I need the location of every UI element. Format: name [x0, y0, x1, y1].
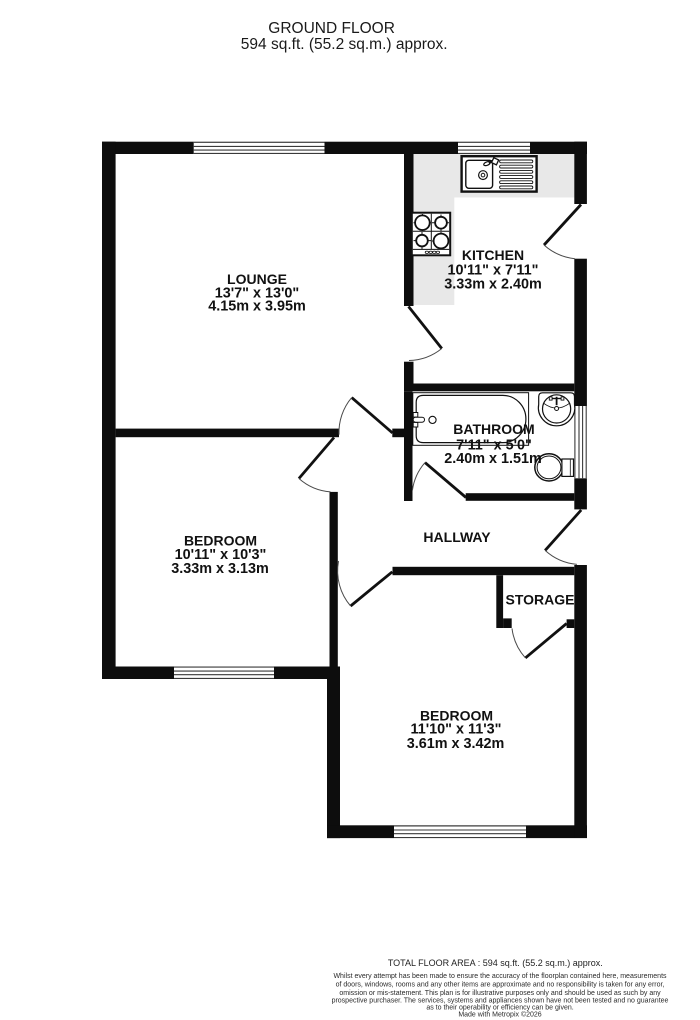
svg-text:TOTAL FLOOR AREA : 594 sq.ft.: TOTAL FLOOR AREA : 594 sq.ft. (55.2 sq.m… [388, 958, 603, 968]
svg-text:4.15m x 3.95m: 4.15m x 3.95m [208, 299, 306, 315]
svg-text:STORAGE: STORAGE [506, 592, 575, 608]
svg-text:HALLWAY: HALLWAY [423, 529, 491, 545]
svg-text:Made with Metropix ©2026: Made with Metropix ©2026 [458, 1011, 541, 1019]
svg-text:3.33m x 3.13m: 3.33m x 3.13m [171, 561, 269, 577]
svg-text:3.33m x 2.40m: 3.33m x 2.40m [444, 276, 542, 292]
svg-text:594 sq.ft. (55.2 sq.m.) approx: 594 sq.ft. (55.2 sq.m.) approx. [241, 36, 448, 53]
svg-text:of doors, windows, rooms and a: of doors, windows, rooms and any other i… [336, 982, 665, 989]
svg-text:as to their operability or eff: as to their operability or efficiency ca… [426, 1005, 573, 1012]
svg-text:KITCHEN: KITCHEN [462, 247, 524, 263]
svg-text:3.61m x 3.42m: 3.61m x 3.42m [407, 736, 505, 752]
svg-text:2.40m x 1.51m: 2.40m x 1.51m [444, 451, 542, 467]
svg-text:BATHROOM: BATHROOM [453, 421, 534, 437]
svg-text:GROUND FLOOR: GROUND FLOOR [268, 20, 395, 37]
svg-text:prospective purchaser. The ser: prospective purchaser. The services, sys… [332, 998, 669, 1005]
svg-text:omission or mis-statement. Thi: omission or mis-statement. This plan is … [339, 990, 661, 997]
svg-text:Whilst every attempt has been: Whilst every attempt has been made to en… [333, 973, 667, 980]
